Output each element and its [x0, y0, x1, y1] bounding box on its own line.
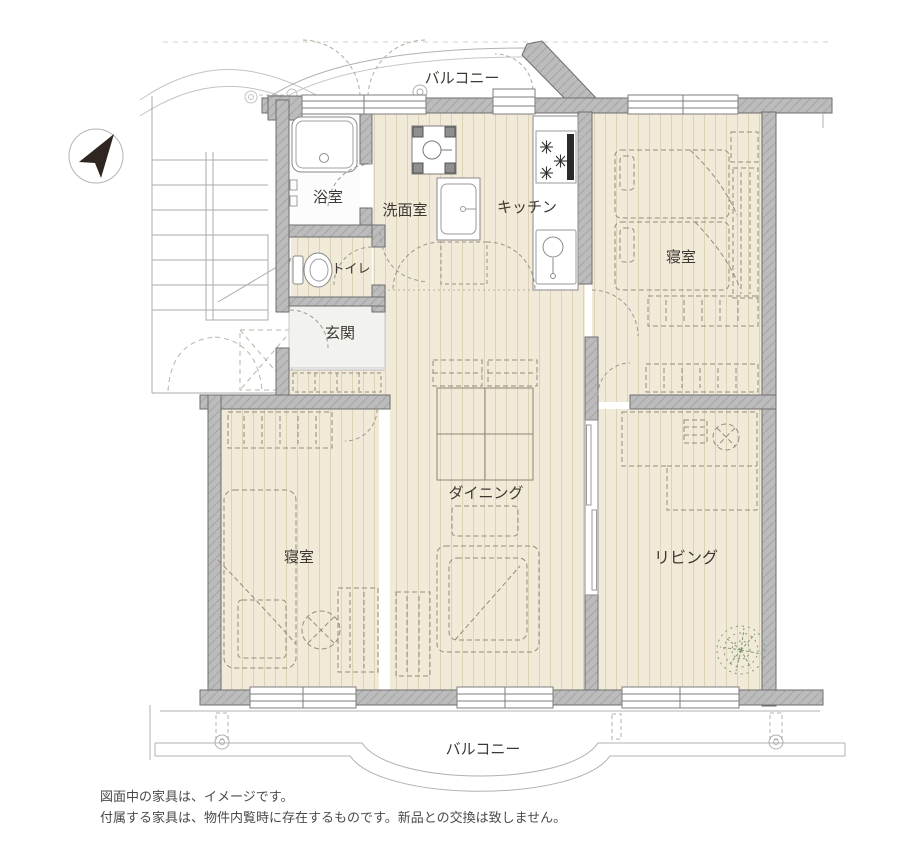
room-label-entrance: 玄関: [325, 325, 355, 342]
stove-icon: [536, 131, 576, 183]
room-label-balcony-top: バルコニー: [425, 70, 500, 87]
room-label-balcony-bottom: バルコニー: [446, 741, 521, 758]
disclaimer-line-2: 付属する家具は、物件内覧時に存在するものです。新品との交換は致しません。: [100, 807, 566, 828]
room-label-kitchen: キッチン: [497, 199, 557, 216]
room-label-living: リビング: [654, 549, 718, 567]
disclaimer-line-1: 図面中の家具は、イメージです。: [100, 786, 566, 807]
room-label-bedroom-right: 寝室: [666, 248, 696, 266]
floorplan-drawing: バルコニー 浴室 洗面室 キッチン トイレ 玄関 寝室 寝室 ダイニング リビン…: [0, 0, 900, 850]
room-label-dining: ダイニング: [448, 485, 523, 502]
disclaimer-note: 図面中の家具は、イメージです。 付属する家具は、物件内覧時に存在するものです。新…: [100, 786, 566, 829]
windows-bottom: [250, 687, 739, 708]
entry-porch: [168, 330, 292, 391]
sliding-door-living: [585, 420, 598, 595]
toilet-icon: [293, 253, 332, 287]
room-label-toilet: トイレ: [331, 261, 370, 276]
stairs: [152, 96, 292, 393]
kitchen-sink-icon: [536, 230, 576, 284]
washing-machine-icon: [412, 126, 456, 174]
floorplan-page: バルコニー 浴室 洗面室 キッチン トイレ 玄関 寝室 寝室 ダイニング リビン…: [0, 0, 900, 850]
room-label-bath: 浴室: [313, 189, 343, 206]
windows-top: [302, 89, 738, 114]
room-label-bedroom-left: 寝室: [284, 548, 314, 566]
room-label-washroom: 洗面室: [382, 202, 427, 219]
compass-icon: [69, 129, 123, 183]
washbasin-icon: [437, 178, 480, 240]
